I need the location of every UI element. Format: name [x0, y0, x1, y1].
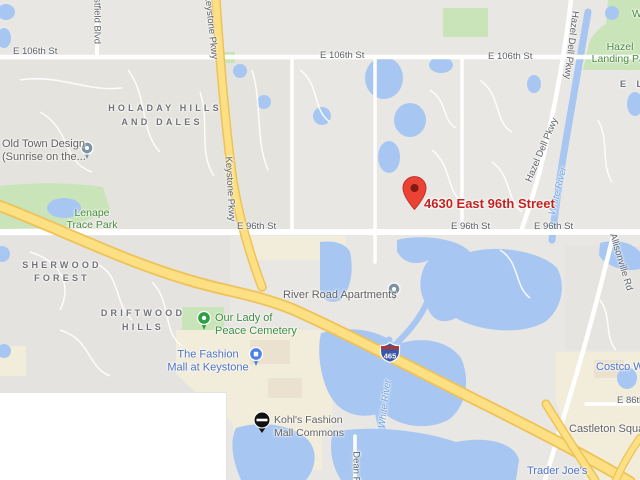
poi-label-our-lady-of-peace-cemetery[interactable]: Our Lady of Peace Cemetery: [215, 312, 297, 337]
neighborhood-label-driftwood-1: DRIFTWOOD: [101, 308, 185, 318]
poi-label-castleton-square[interactable]: Castleton Squa: [569, 423, 640, 436]
poi-label-lenape-trace-park[interactable]: Lenape Trace Park: [67, 207, 118, 231]
street-label-dean: Dean Rd: [351, 451, 362, 480]
neighborhood-label-el-clipped: E L: [620, 79, 640, 89]
poi-label-costco[interactable]: Costco Wh: [596, 361, 640, 374]
map-screenshot: 465: [0, 0, 640, 480]
poi-label-old-town-design[interactable]: Old Town Design (Sunrise on the...: [2, 138, 86, 163]
poi-label-hazel-landing-park[interactable]: Hazel Landing Par: [592, 41, 640, 65]
street-label-e106th-3: E 106th St: [488, 51, 532, 62]
dealer-logo: Tom O'Brien CHRYSLER Jeep DODGE//: [0, 392, 227, 480]
neighborhood-label-holaday-2: AND DALES: [121, 117, 202, 127]
neighborhood-label-sherwood-2: FOREST: [34, 273, 90, 283]
poi-label-trader-joes[interactable]: Trader Joe's: [527, 465, 587, 478]
street-label-e96th-3: E 96th St: [534, 221, 573, 232]
street-label-e96th-2: E 96th St: [451, 221, 490, 232]
poi-label-w-clipped: W: [632, 8, 640, 20]
neighborhood-label-sherwood-1: SHERWOOD: [22, 260, 101, 270]
street-label-e96th-1: E 96th St: [237, 221, 276, 232]
neighborhood-label-driftwood-2: HILLS: [122, 322, 164, 332]
street-label-westfield: Westfield Blvd: [92, 0, 103, 44]
street-label-e106th-1: E 106th St: [13, 46, 57, 57]
svg-text:465: 465: [384, 352, 397, 361]
i465-shield-icon: 465: [381, 343, 400, 363]
neighborhood-label-holaday-1: HOLADAY HILLS: [108, 103, 222, 113]
poi-label-river-road-apartments[interactable]: River Road Apartments: [283, 289, 397, 302]
poi-label-fashion-mall[interactable]: The Fashion Mall at Keystone: [167, 349, 248, 374]
street-label-e106th-2: E 106th St: [320, 50, 364, 61]
destination-address-label[interactable]: 4630 East 96th Street: [424, 196, 555, 211]
poi-label-kohls-fashion-mall-commons[interactable]: Kohl's Fashion Mall Commons: [274, 414, 344, 439]
street-label-e86th: E 86th St: [617, 395, 640, 406]
